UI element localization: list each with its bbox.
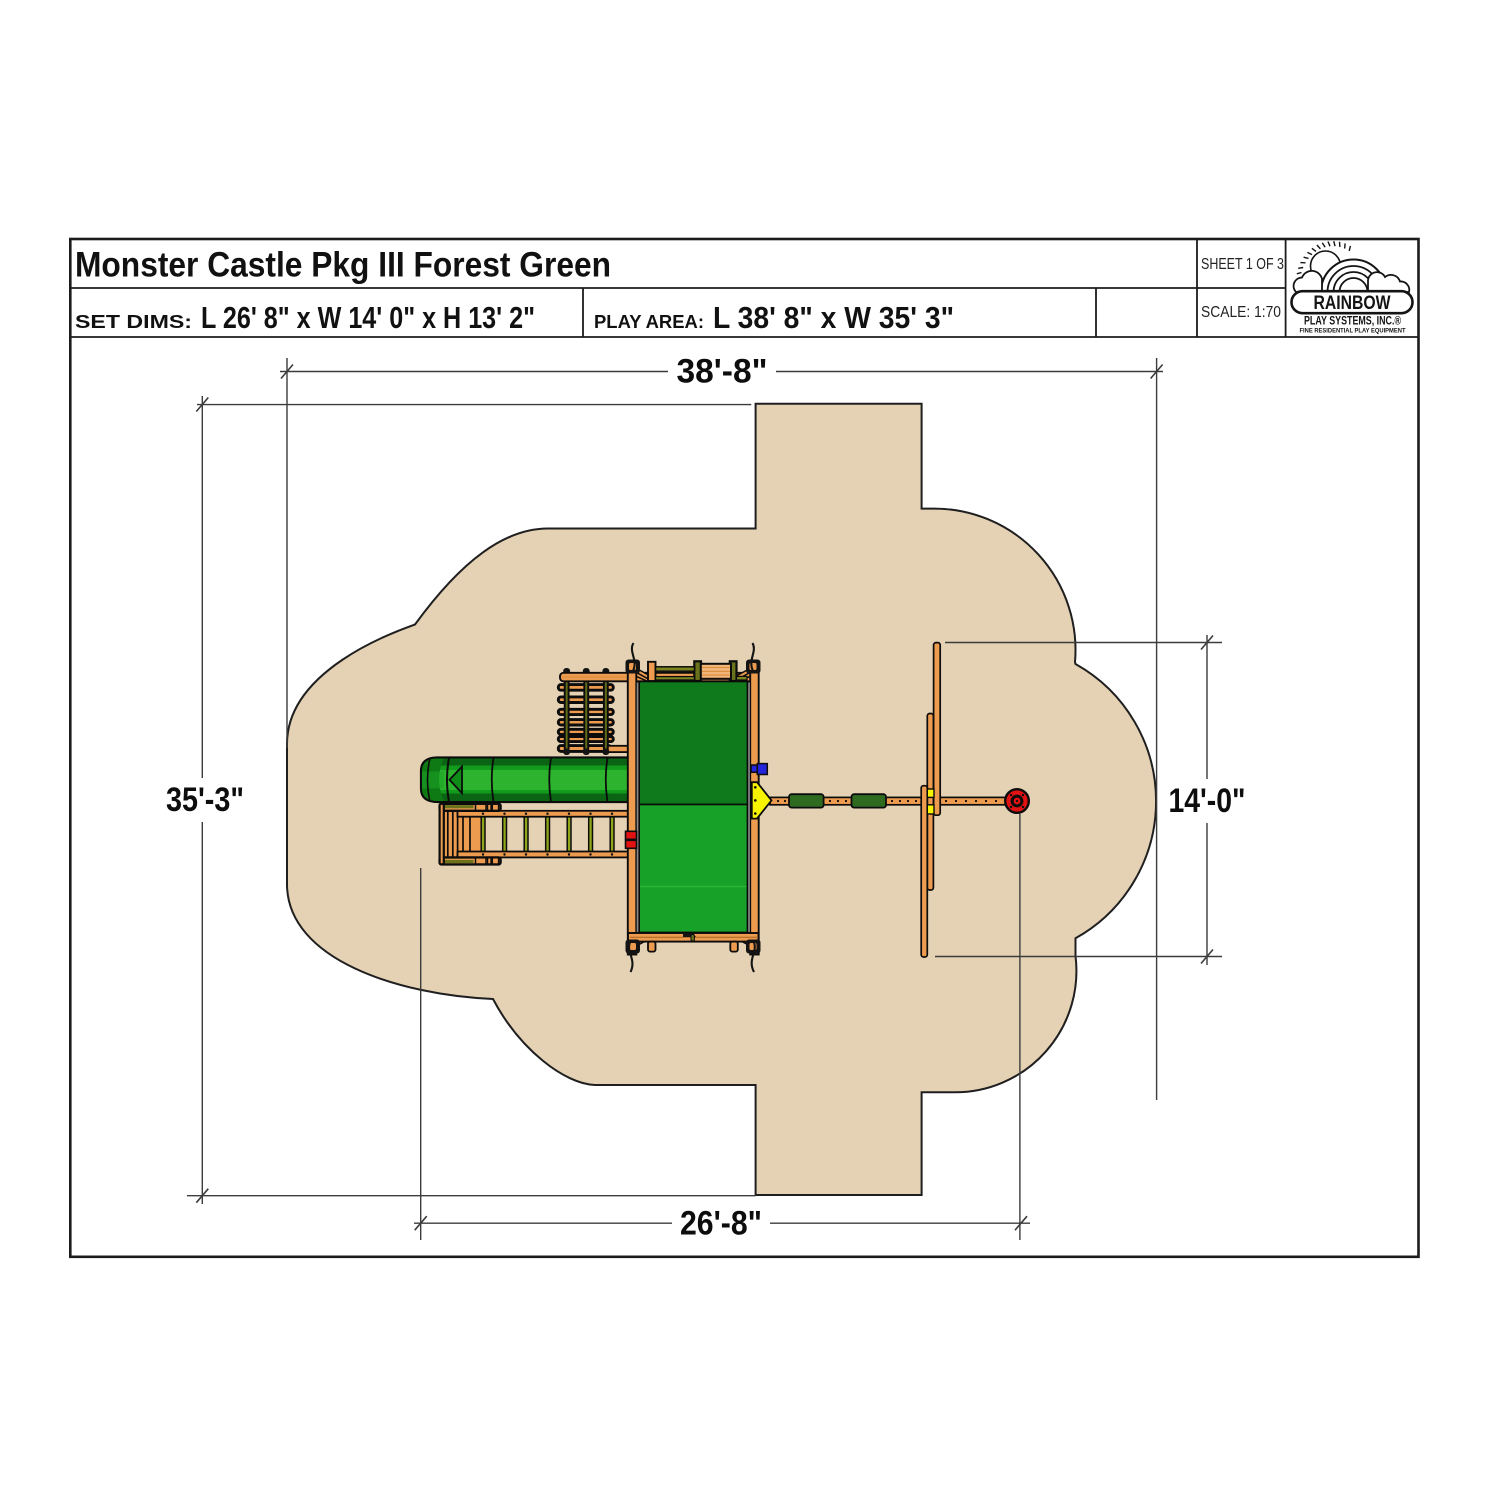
svg-text:RAINBOW: RAINBOW [1314, 292, 1391, 314]
svg-text:SCALE: 1:70: SCALE: 1:70 [1201, 304, 1281, 321]
svg-text:26'-8": 26'-8" [680, 1205, 762, 1243]
svg-text:PLAY AREA:: PLAY AREA: [594, 312, 704, 332]
svg-text:L 26' 8" x W 14' 0" x H 13' 2": L 26' 8" x W 14' 0" x H 13' 2" [201, 300, 535, 335]
svg-text:FINE RESIDENTIAL PLAY EQUIPMEN: FINE RESIDENTIAL PLAY EQUIPMENT [1300, 328, 1406, 335]
svg-text:PLAY SYSTEMS, INC.®: PLAY SYSTEMS, INC.® [1304, 316, 1401, 328]
svg-text:SHEET 1 OF 3: SHEET 1 OF 3 [1201, 256, 1284, 273]
svg-text:14'-0": 14'-0" [1169, 782, 1246, 820]
svg-text:Monster Castle Pkg III Forest: Monster Castle Pkg III Forest Green [75, 245, 611, 285]
svg-text:SET DIMS:: SET DIMS: [75, 312, 192, 332]
svg-text:35'-3": 35'-3" [166, 781, 244, 819]
svg-text:L 38' 8" x W 35' 3": L 38' 8" x W 35' 3" [713, 300, 954, 335]
svg-text:38'-8": 38'-8" [677, 353, 768, 391]
